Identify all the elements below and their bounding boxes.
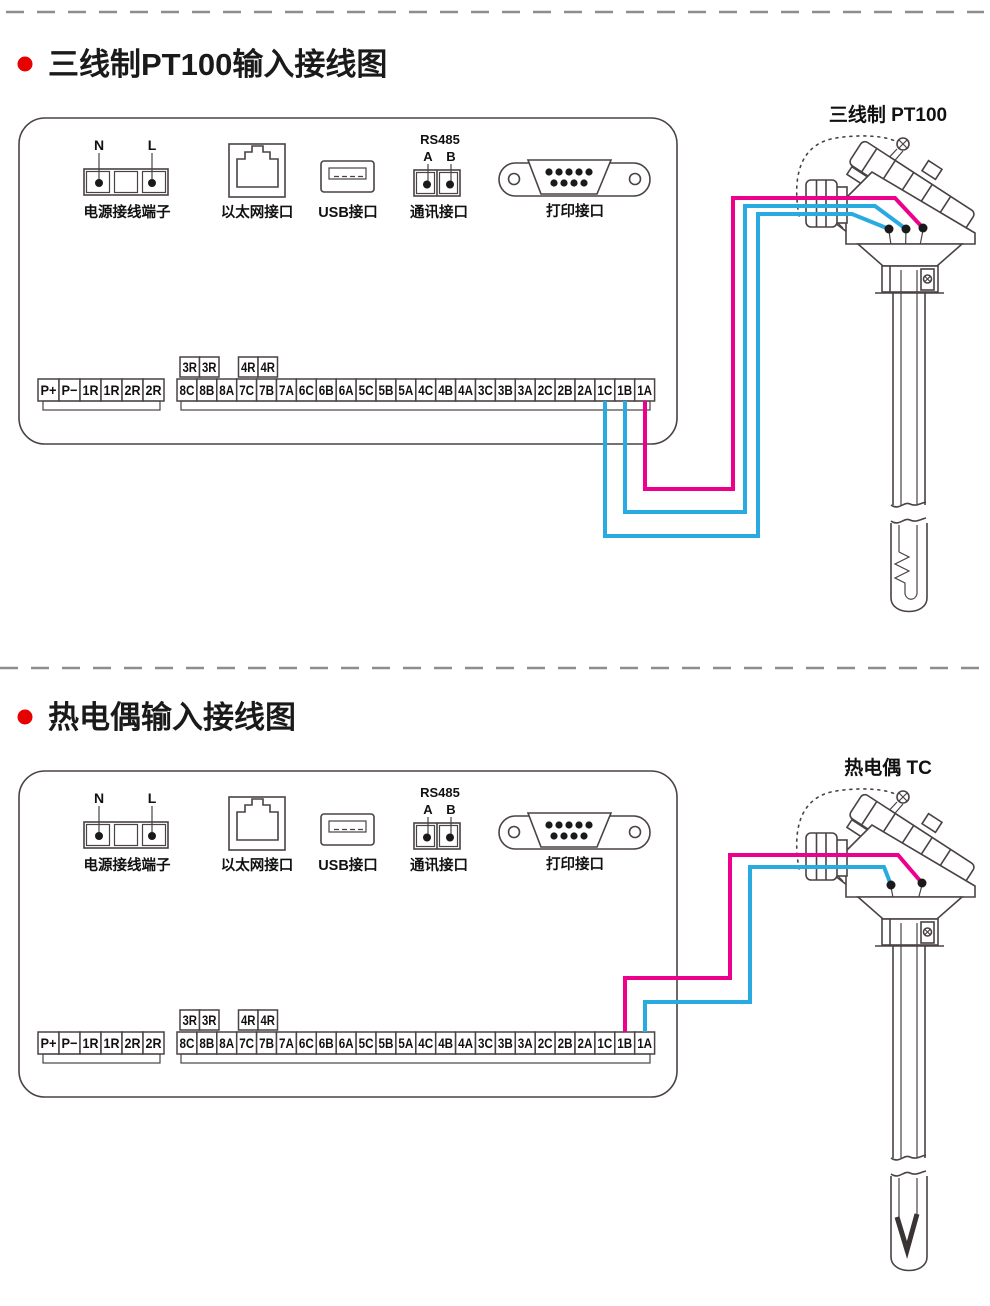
rtd-element-icon: [895, 552, 909, 594]
pt100-wiring-diagram: 三线制PT100输入接线图 N L 电源接线端子 以太网接口 USB接口 RS4…: [0, 0, 990, 653]
terminal-cell-label: P+: [41, 1035, 57, 1051]
probe-break: [891, 502, 926, 507]
terminal-cell-label: 5A: [398, 383, 413, 398]
terminal-dot: [885, 225, 894, 234]
terminal-cell-label: 7A: [279, 1036, 294, 1051]
terminal-cell-label: 3R: [202, 1013, 217, 1028]
printer-label: 打印接口: [546, 202, 604, 220]
aux-strip-3r: 3R3R: [180, 357, 219, 377]
printer-label: 打印接口: [546, 855, 604, 873]
terminal-cell-label: 7C: [239, 383, 254, 398]
usb-slot-icon: [329, 168, 366, 179]
power-label: 电源接线端子: [84, 856, 171, 874]
screw-hole: [630, 174, 641, 185]
terminal-cell-label: 5B: [379, 1036, 394, 1051]
terminal-cell-label: 2C: [538, 383, 553, 398]
terminal-cell-label: 3A: [518, 383, 533, 398]
strip-main-rail: [181, 1054, 650, 1063]
usb-port: USB接口: [318, 814, 378, 874]
terminal-cell-label: P+: [41, 382, 57, 398]
power-leads: [99, 153, 152, 183]
power-cell: [115, 172, 138, 193]
screw-hole: [509, 174, 520, 185]
ethernet-label: 以太网接口: [221, 856, 294, 874]
screw-dot: [148, 179, 156, 187]
ethernet-port: 以太网接口: [221, 797, 294, 874]
terminal-cell-label: 1C: [597, 383, 612, 398]
screw-dot: [148, 832, 156, 840]
terminal-cell-label: 8A: [219, 1036, 234, 1051]
power-terminal: N L 电源接线端子: [84, 790, 171, 874]
pin-n-label: N: [94, 790, 104, 806]
terminal-dot: [918, 879, 927, 888]
comm-label: 通讯接口: [410, 856, 468, 874]
comm-label: 通讯接口: [410, 203, 468, 221]
probe-break: [891, 1155, 926, 1160]
rs485-label: RS485: [420, 785, 460, 800]
terminal-cell-label: 2R: [146, 382, 162, 398]
terminal-cell-label: 6C: [299, 383, 314, 398]
terminal-cell-label: 8B: [199, 1036, 214, 1051]
tc-junction-icon: [897, 1214, 917, 1250]
terminal-cell-label: 7B: [259, 383, 274, 398]
terminal-dot: [887, 881, 896, 890]
terminal-cell-label: 6C: [299, 1036, 314, 1051]
probe-break: [891, 1171, 926, 1176]
power-terminal: N L 电源接线端子: [84, 137, 171, 221]
screw-dot: [423, 834, 431, 842]
terminal-strip-main: 8C8B8A7C7B7A6C6B6A5C5B5A4C4B4A3C3B3A2C2B…: [177, 1032, 655, 1054]
aux-strip-4r: 4R4R: [239, 1010, 278, 1030]
terminal-cell-label: 1R: [83, 382, 99, 398]
db9-shell-icon: [528, 813, 611, 847]
wiring-diagram-page: 三线制PT100输入接线图 N L 电源接线端子 以太网接口 USB接口 RS4…: [0, 0, 990, 1306]
pin-a-label: A: [423, 149, 433, 164]
terminal-dot: [919, 224, 928, 233]
terminal-cell-label: 4R: [241, 360, 256, 375]
terminal-cell-label: 1C: [597, 1036, 612, 1051]
screw-dot: [95, 832, 103, 840]
terminal-cell-label: 2R: [146, 1035, 162, 1051]
terminal-cell-label: 6A: [339, 1036, 354, 1051]
terminal-cell-label: 8C: [180, 383, 195, 398]
usb-label: USB接口: [318, 856, 378, 874]
terminal-cell-label: P−: [62, 382, 78, 398]
terminal-cell-label: 3B: [498, 1036, 513, 1051]
pin-n-label: N: [94, 137, 104, 153]
terminal-cell-label: 2R: [125, 382, 141, 398]
screw-dot: [446, 834, 454, 842]
terminal-cell-label: 4R: [261, 360, 276, 375]
usb-label: USB接口: [318, 203, 378, 221]
terminal-cell-label: 3C: [478, 1036, 493, 1051]
comm-port: RS485 A B 通讯接口: [410, 132, 468, 221]
terminal-cell-label: 3B: [498, 383, 513, 398]
terminal-cell-label: 3A: [518, 1036, 533, 1051]
bullet-icon: [18, 710, 33, 725]
wire-blue-1B: [625, 206, 906, 512]
terminal-cell-label: 1A: [637, 1036, 652, 1051]
terminal-cell-label: 5B: [379, 383, 394, 398]
terminal-strip-left: P+P−1R1R2R2R: [38, 379, 164, 401]
terminal-cell-label: 1R: [104, 1035, 120, 1051]
terminal-cell-label: 8C: [180, 1036, 195, 1051]
terminal-cell-label: 4B: [438, 383, 453, 398]
terminal-cell-label: 8A: [219, 383, 234, 398]
terminal-cell-label: 4R: [261, 1013, 276, 1028]
pin-l-label: L: [148, 790, 157, 806]
terminal-cell-label: 5C: [359, 383, 374, 398]
terminal-cell-label: 5C: [359, 1036, 374, 1051]
terminal-cell-label: 2B: [558, 1036, 573, 1051]
terminal-cell-label: 4B: [438, 1036, 453, 1051]
terminal-cell-label: 1B: [617, 383, 632, 398]
terminal-strip-main: 8C8B8A7C7B7A6C6B6A5C5B5A4C4B4A3C3B3A2C2B…: [177, 379, 655, 401]
pin-b-label: B: [446, 802, 455, 817]
terminal-cell-label: 1A: [637, 383, 652, 398]
terminal-cell-label: 1B: [617, 1036, 632, 1051]
sensor-clamp: [875, 266, 944, 293]
section-title: 热电偶输入接线图: [18, 700, 297, 735]
ethernet-label: 以太网接口: [221, 203, 294, 221]
aux-strip-4r: 4R4R: [239, 357, 278, 377]
terminal-cell-label: 1R: [83, 1035, 99, 1051]
terminal-cell-label: 8B: [199, 383, 214, 398]
terminal-cell-label: 2B: [558, 383, 573, 398]
power-leads: [99, 806, 152, 836]
bullet-icon: [18, 57, 33, 72]
terminal-cell-label: 2A: [578, 383, 593, 398]
terminal-cell-label: 4A: [458, 383, 473, 398]
page-title: 热电偶输入接线图: [48, 700, 296, 735]
sensor-neck: [858, 897, 962, 919]
db9-shell-icon: [528, 160, 611, 194]
power-label: 电源接线端子: [84, 203, 171, 221]
comm-port: RS485 A B 通讯接口: [410, 785, 468, 874]
sensor-neck: [858, 244, 962, 266]
terminal-dot: [902, 225, 911, 234]
terminal-cell-label: 2C: [538, 1036, 553, 1051]
rs485-label: RS485: [420, 132, 460, 147]
pin-l-label: L: [148, 137, 157, 153]
cap-tab: [922, 161, 942, 180]
terminal-cell-label: 6A: [339, 383, 354, 398]
power-cell: [115, 825, 138, 846]
sensor-clamp: [875, 919, 944, 946]
screw-dot: [446, 181, 454, 189]
printer-port: 打印接口: [499, 813, 650, 873]
strip-left-rail: [43, 1054, 160, 1063]
terminal-cell-label: P−: [62, 1035, 78, 1051]
terminal-cell-label: 7C: [239, 1036, 254, 1051]
terminal-cell-label: 3R: [202, 360, 217, 375]
usb-port: USB接口: [318, 161, 378, 221]
terminal-cell-label: 4C: [418, 1036, 433, 1051]
terminal-cell-label: 2A: [578, 1036, 593, 1051]
terminal-cell-label: 4C: [418, 383, 433, 398]
page-title: 三线制PT100输入接线图: [48, 47, 387, 82]
terminal-cell-label: 3R: [183, 360, 198, 375]
terminal-cell-label: 3C: [478, 383, 493, 398]
screw-hole: [509, 827, 520, 838]
terminal-cell-label: 7B: [259, 1036, 274, 1051]
terminal-cell-label: 4R: [241, 1013, 256, 1028]
pin-b-label: B: [446, 149, 455, 164]
printer-port: 打印接口: [499, 160, 650, 220]
pin-a-label: A: [423, 802, 433, 817]
sensor-label: 三线制 PT100: [829, 103, 947, 126]
strip-left-rail: [43, 401, 160, 410]
terminal-cell-label: 1R: [104, 382, 120, 398]
sensor-probe: [891, 270, 927, 612]
terminal-cell-label: 2R: [125, 1035, 141, 1051]
usb-slot-icon: [329, 821, 366, 832]
thermocouple-wiring-diagram: 热电偶输入接线图 N L 电源接线端子 以太网接口 USB接口 RS485 A …: [0, 653, 990, 1306]
terminal-cell-label: 6B: [319, 383, 334, 398]
sensor-pt100: 三线制 PT100: [797, 103, 976, 612]
aux-strip-3r: 3R3R: [180, 1010, 219, 1030]
rj45-icon: [237, 146, 278, 187]
section-title: 三线制PT100输入接线图: [18, 47, 388, 82]
ethernet-port: 以太网接口: [221, 144, 294, 221]
terminal-cell-label: 3R: [183, 1013, 198, 1028]
sensor-probe: [891, 923, 927, 1271]
strip-main-rail: [181, 401, 650, 410]
screw-hole: [630, 827, 641, 838]
probe-break: [891, 518, 926, 523]
terminal-cell-label: 5A: [398, 1036, 413, 1051]
terminal-cell-label: 7A: [279, 383, 294, 398]
rj45-icon: [237, 799, 278, 840]
screw-dot: [423, 181, 431, 189]
terminal-cell-label: 6B: [319, 1036, 334, 1051]
screw-dot: [95, 179, 103, 187]
sensor-label: 热电偶 TC: [844, 756, 932, 779]
terminal-cell-label: 4A: [458, 1036, 473, 1051]
sensor-tc: 热电偶 TC: [797, 756, 976, 1271]
sensor-nut: [806, 180, 837, 227]
cap-tab: [922, 814, 942, 833]
terminal-strip-left: P+P−1R1R2R2R: [38, 1032, 164, 1054]
